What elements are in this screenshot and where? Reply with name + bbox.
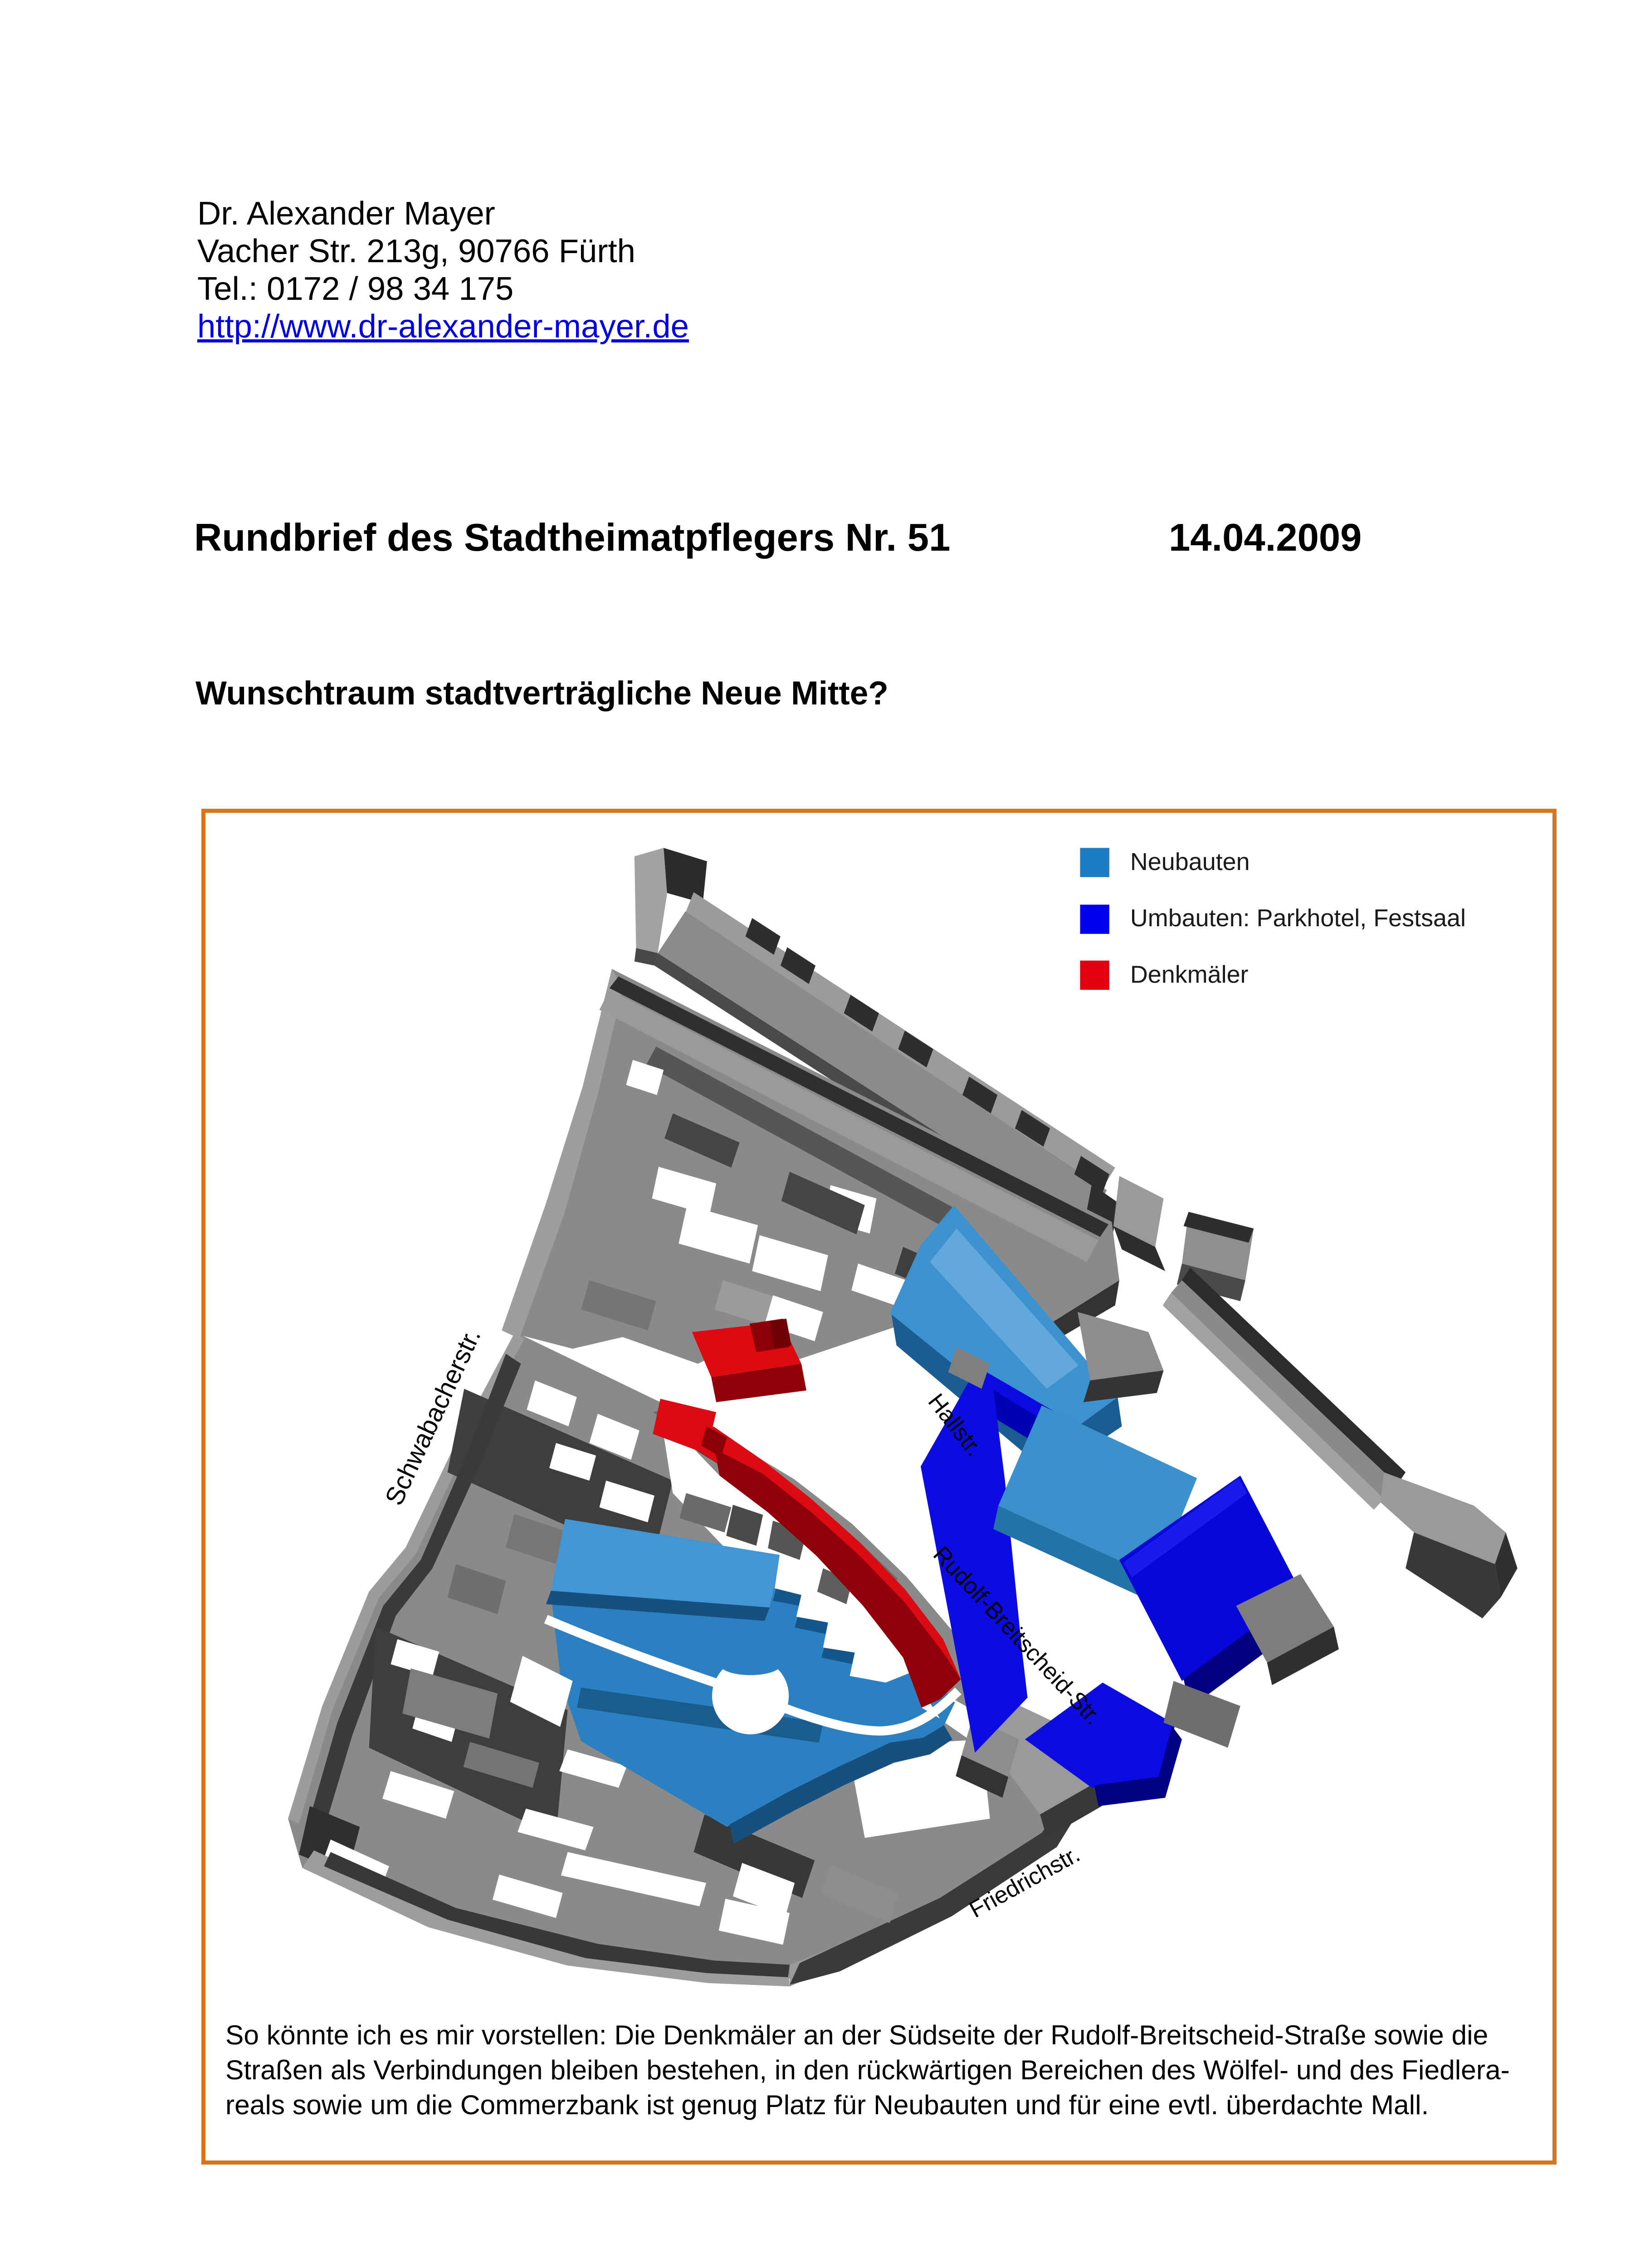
svg-text:Umbauten: Parkhotel, Festsaal: Umbauten: Parkhotel, Festsaal <box>1130 904 1466 932</box>
svg-text:Denkmäler: Denkmäler <box>1130 961 1249 988</box>
svg-text:Neubauten: Neubauten <box>1130 848 1250 875</box>
